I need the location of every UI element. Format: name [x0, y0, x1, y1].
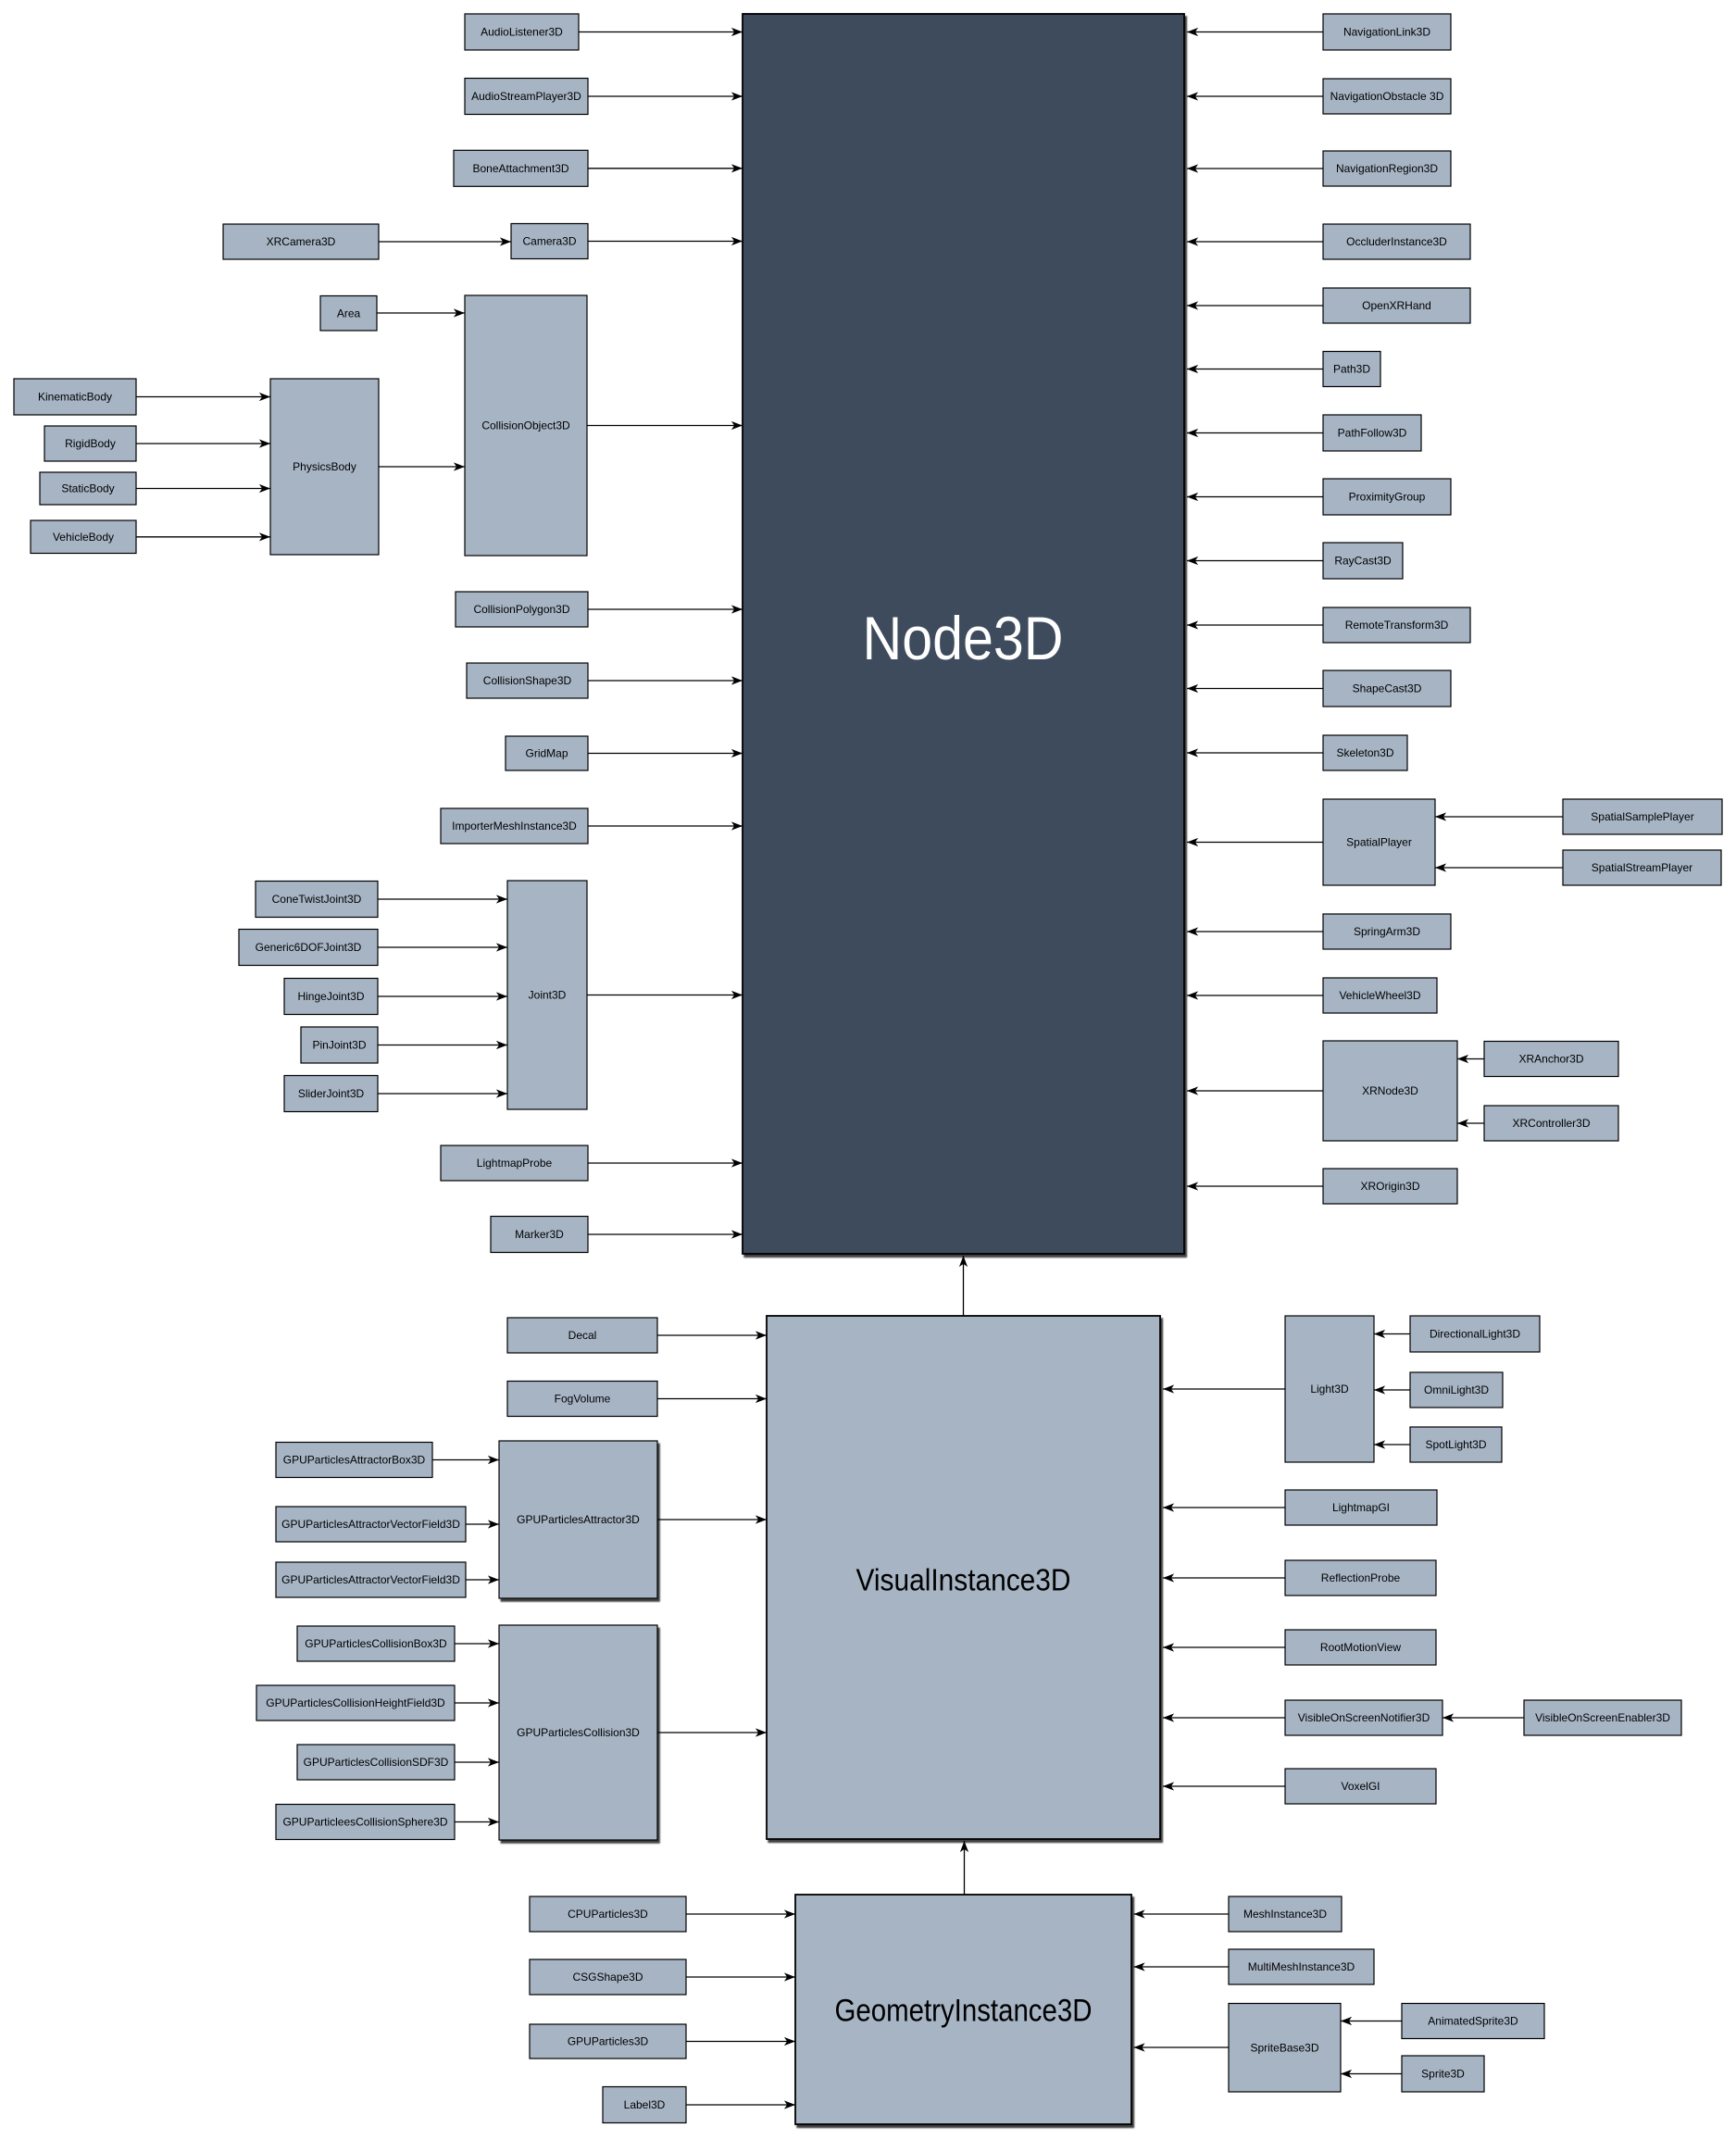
svg-text:ConeTwistJoint3D: ConeTwistJoint3D: [272, 893, 362, 906]
svg-text:CSGShape3D: CSGShape3D: [572, 1971, 643, 1984]
svg-text:BoneAttachment3D: BoneAttachment3D: [472, 162, 568, 175]
svg-text:Camera3D: Camera3D: [522, 235, 576, 248]
svg-text:StaticBody: StaticBody: [61, 482, 114, 495]
svg-text:DirectionalLight3D: DirectionalLight3D: [1430, 1328, 1520, 1341]
svg-text:FogVolume: FogVolume: [555, 1393, 611, 1406]
svg-text:RigidBody: RigidBody: [65, 437, 116, 450]
svg-text:LightmapGI: LightmapGI: [1332, 1501, 1390, 1514]
svg-text:Generic6DOFJoint3D: Generic6DOFJoint3D: [256, 941, 362, 954]
svg-text:AudioListener3D: AudioListener3D: [481, 26, 563, 39]
svg-text:PinJoint3D: PinJoint3D: [312, 1039, 366, 1052]
svg-text:GridMap: GridMap: [525, 747, 568, 760]
svg-text:GeometryInstance3D: GeometryInstance3D: [835, 1994, 1093, 2029]
svg-text:NavigationLink3D: NavigationLink3D: [1343, 26, 1430, 39]
svg-text:Marker3D: Marker3D: [515, 1228, 564, 1241]
svg-text:OpenXRHand: OpenXRHand: [1362, 299, 1431, 312]
svg-text:SpatialSamplePlayer: SpatialSamplePlayer: [1591, 810, 1693, 823]
svg-text:GPUParticlesCollisionBox3D: GPUParticlesCollisionBox3D: [305, 1637, 447, 1650]
svg-text:SpatialPlayer: SpatialPlayer: [1346, 836, 1412, 849]
svg-text:Light3D: Light3D: [1310, 1383, 1349, 1395]
svg-text:AudioStreamPlayer3D: AudioStreamPlayer3D: [471, 90, 581, 103]
svg-text:LightmapProbe: LightmapProbe: [477, 1157, 553, 1170]
svg-text:OccluderInstance3D: OccluderInstance3D: [1346, 235, 1447, 248]
svg-text:Joint3D: Joint3D: [529, 989, 567, 1002]
svg-text:SpatialStreamPlayer: SpatialStreamPlayer: [1592, 861, 1692, 874]
svg-text:Node3D: Node3D: [863, 604, 1064, 672]
svg-text:ReflectionProbe: ReflectionProbe: [1321, 1571, 1401, 1584]
svg-text:SpriteBase3D: SpriteBase3D: [1250, 2041, 1318, 2054]
svg-text:SliderJoint3D: SliderJoint3D: [298, 1087, 365, 1100]
svg-text:CPUParticles3D: CPUParticles3D: [568, 1908, 648, 1921]
svg-text:PhysicsBody: PhysicsBody: [293, 460, 356, 473]
svg-text:Sprite3D: Sprite3D: [1421, 2068, 1465, 2081]
svg-text:VehicleWheel3D: VehicleWheel3D: [1339, 989, 1420, 1002]
svg-text:NavigationObstacle 3D: NavigationObstacle 3D: [1330, 90, 1444, 103]
svg-text:GPUParticleesCollisionSphere3D: GPUParticleesCollisionSphere3D: [282, 1816, 447, 1829]
svg-text:XRNode3D: XRNode3D: [1362, 1084, 1418, 1097]
svg-text:Decal: Decal: [568, 1329, 597, 1342]
svg-text:KinematicBody: KinematicBody: [38, 391, 112, 404]
svg-text:CollisionPolygon3D: CollisionPolygon3D: [473, 603, 569, 616]
svg-text:GPUParticlesAttractorBox3D: GPUParticlesAttractorBox3D: [283, 1454, 426, 1467]
svg-text:MeshInstance3D: MeshInstance3D: [1243, 1908, 1327, 1921]
svg-text:GPUParticlesCollisionSDF3D: GPUParticlesCollisionSDF3D: [304, 1756, 449, 1769]
svg-text:RootMotionView: RootMotionView: [1320, 1641, 1401, 1654]
svg-text:XRCamera3D: XRCamera3D: [267, 235, 336, 248]
svg-text:GPUParticlesCollision3D: GPUParticlesCollision3D: [517, 1726, 640, 1739]
svg-text:VisibleOnScreenEnabler3D: VisibleOnScreenEnabler3D: [1535, 1711, 1670, 1724]
svg-text:SpotLight3D: SpotLight3D: [1425, 1438, 1486, 1451]
svg-text:GPUParticlesAttractor3D: GPUParticlesAttractor3D: [517, 1513, 640, 1526]
svg-text:Path3D: Path3D: [1333, 363, 1370, 376]
svg-text:RemoteTransform3D: RemoteTransform3D: [1345, 619, 1449, 632]
svg-text:PathFollow3D: PathFollow3D: [1338, 427, 1407, 440]
svg-text:ImporterMeshInstance3D: ImporterMeshInstance3D: [452, 820, 577, 832]
svg-text:VisibleOnScreenNotifier3D: VisibleOnScreenNotifier3D: [1298, 1711, 1430, 1724]
svg-text:Label3D: Label3D: [624, 2098, 666, 2111]
svg-text:HingeJoint3D: HingeJoint3D: [297, 990, 364, 1003]
svg-text:GPUParticlesCollisionHeightFie: GPUParticlesCollisionHeightField3D: [266, 1696, 445, 1709]
svg-text:VisualInstance3D: VisualInstance3D: [856, 1563, 1071, 1597]
svg-text:CollisionObject3D: CollisionObject3D: [481, 419, 570, 432]
svg-text:RayCast3D: RayCast3D: [1334, 555, 1392, 568]
svg-text:GPUParticlesAttractorVectorFie: GPUParticlesAttractorVectorField3D: [281, 1518, 460, 1531]
svg-text:GPUParticlesAttractorVectorFie: GPUParticlesAttractorVectorField3D: [281, 1573, 460, 1586]
svg-text:ShapeCast3D: ShapeCast3D: [1353, 682, 1422, 695]
svg-text:XRAnchor3D: XRAnchor3D: [1518, 1053, 1583, 1066]
svg-text:Skeleton3D: Skeleton3D: [1336, 746, 1393, 759]
svg-text:XRController3D: XRController3D: [1512, 1117, 1590, 1130]
svg-text:MultiMeshInstance3D: MultiMeshInstance3D: [1248, 1960, 1355, 1973]
svg-text:GPUParticles3D: GPUParticles3D: [568, 2035, 649, 2048]
svg-text:SpringArm3D: SpringArm3D: [1354, 925, 1420, 938]
svg-text:OmniLight3D: OmniLight3D: [1424, 1383, 1489, 1396]
svg-text:VehicleBody: VehicleBody: [53, 531, 114, 544]
svg-text:ProximityGroup: ProximityGroup: [1349, 491, 1426, 504]
svg-text:CollisionShape3D: CollisionShape3D: [483, 674, 572, 687]
svg-text:VoxelGI: VoxelGI: [1341, 1780, 1380, 1793]
svg-text:AnimatedSprite3D: AnimatedSprite3D: [1428, 2015, 1518, 2028]
svg-text:XROrigin3D: XROrigin3D: [1360, 1180, 1419, 1193]
svg-text:Area: Area: [337, 307, 361, 319]
svg-text:NavigationRegion3D: NavigationRegion3D: [1336, 162, 1438, 175]
